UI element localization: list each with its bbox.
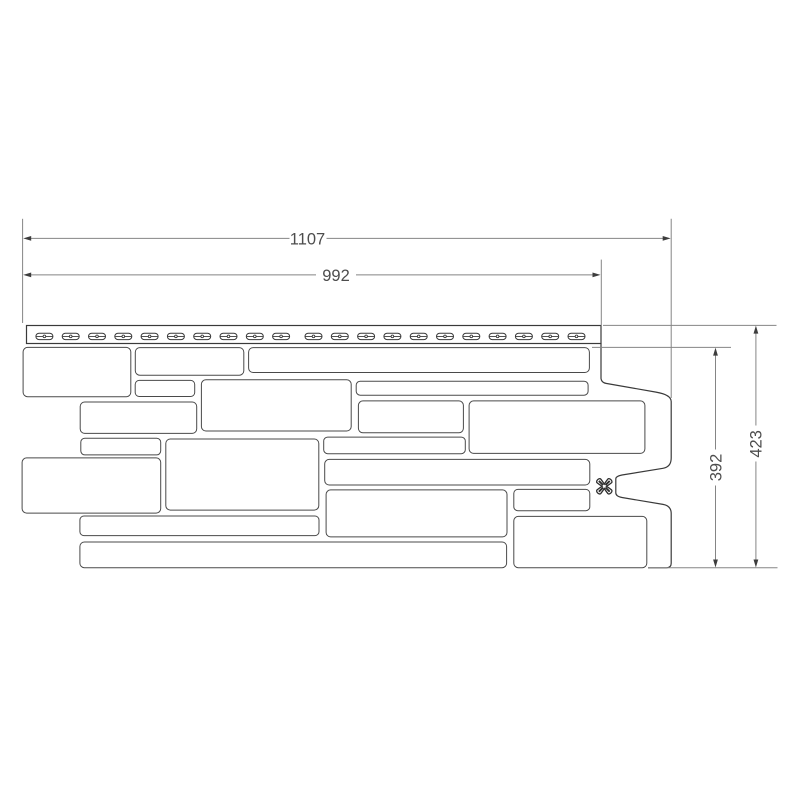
svg-text:992: 992	[322, 267, 350, 285]
svg-text:392: 392	[707, 454, 725, 482]
svg-text:1107: 1107	[290, 230, 325, 248]
svg-text:423: 423	[748, 430, 766, 458]
